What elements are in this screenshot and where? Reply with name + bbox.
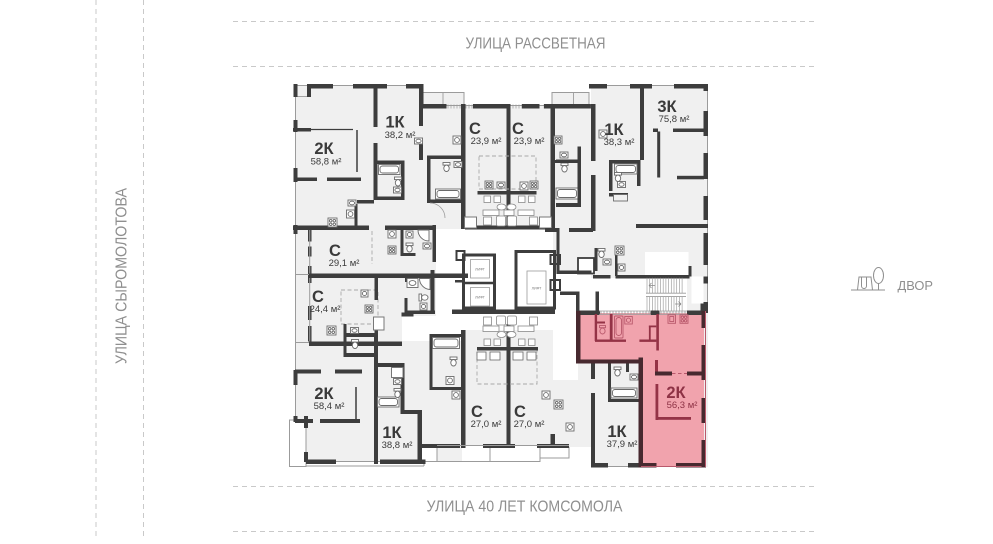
svg-text:38,3 м²: 38,3 м² [604,137,635,148]
svg-text:38,2 м²: 38,2 м² [385,130,416,141]
svg-text:УЛИЦА СЫРОМОЛОТОВА: УЛИЦА СЫРОМОЛОТОВА [114,187,131,364]
svg-text:58,8 м²: 58,8 м² [311,157,342,168]
svg-text:37,9 м²: 37,9 м² [607,439,638,450]
svg-text:УЛИЦА 40 ЛЕТ КОМСОМОЛА: УЛИЦА 40 ЛЕТ КОМСОМОЛА [427,499,624,516]
svg-text:75,8 м²: 75,8 м² [659,114,690,125]
svg-text:ЛИФТ: ЛИФТ [475,296,485,300]
svg-text:27,0 м²: 27,0 м² [471,419,502,430]
svg-text:УЛИЦА РАССВЕТНАЯ: УЛИЦА РАССВЕТНАЯ [466,36,606,53]
svg-text:1К: 1К [385,114,405,132]
svg-text:ЛИФТ: ЛИФТ [532,287,542,291]
svg-text:27,0 м²: 27,0 м² [514,419,545,430]
svg-text:24,4 м²: 24,4 м² [310,304,341,315]
svg-text:2К: 2К [314,140,334,158]
svg-text:58,4 м²: 58,4 м² [314,401,345,412]
svg-text:29,1 м²: 29,1 м² [329,258,360,269]
svg-text:ЛИФТ: ЛИФТ [475,268,485,272]
svg-text:23,9 м²: 23,9 м² [514,136,545,147]
svg-text:ДВОР: ДВОР [898,278,934,293]
svg-text:38,8 м²: 38,8 м² [382,440,413,451]
svg-text:23,9 м²: 23,9 м² [471,136,502,147]
svg-text:56,3 м²: 56,3 м² [667,400,698,411]
